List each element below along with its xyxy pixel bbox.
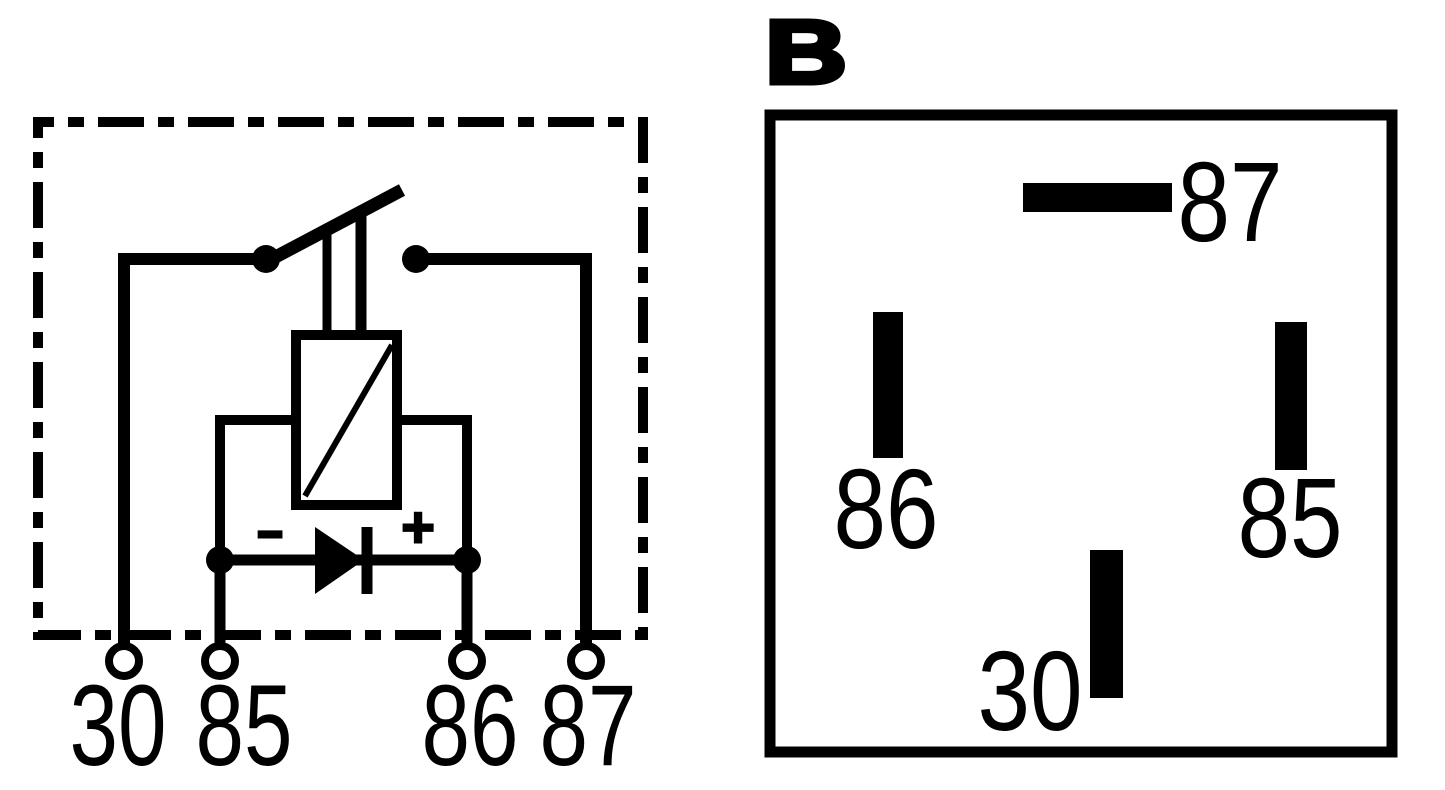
wire-terminal-30 [124,259,266,646]
pin-30: 30 [978,550,1124,754]
polarity-plus-label: + [401,495,435,560]
terminal-85-label: 85 [196,662,293,790]
pin-30-label: 30 [978,628,1083,754]
pin-86-blade [873,312,903,458]
internal-circuit-schematic: − + 30 85 86 [38,122,643,790]
pin-87-label: 87 [1178,139,1283,265]
pin-87-blade [1023,183,1172,212]
pin-86-label: 86 [834,446,939,572]
socket-pinout: B 87 86 85 30 [765,3,1392,754]
diagram-canvas: − + 30 85 86 [0,0,1445,790]
terminal-87-label: 87 [540,662,637,790]
terminal-30: 30 [70,646,167,790]
wire-terminal-87 [416,259,586,646]
terminal-86-label: 86 [422,662,519,790]
terminals: 30 85 86 87 [70,560,637,790]
pin-30-blade [1090,550,1123,698]
diode-triangle [315,527,364,594]
switch-blade [266,190,402,262]
polarity-minus-label: − [257,502,284,565]
pin-86: 86 [834,312,939,572]
terminal-30-label: 30 [70,662,167,790]
contact-dot-right [402,245,430,273]
relay-wiring-diagram: − + 30 85 86 [0,0,1445,790]
contact-dot-left [252,245,280,273]
pin-85-blade [1275,322,1307,470]
pin-85-label: 85 [1238,455,1343,581]
pinout-title: B [765,3,847,103]
relay-coil [296,335,397,505]
terminal-86: 86 [422,560,519,790]
pin-85: 85 [1238,322,1343,581]
pin-87: 87 [1023,139,1283,265]
terminal-85: 85 [196,560,293,790]
terminal-87: 87 [540,646,637,790]
